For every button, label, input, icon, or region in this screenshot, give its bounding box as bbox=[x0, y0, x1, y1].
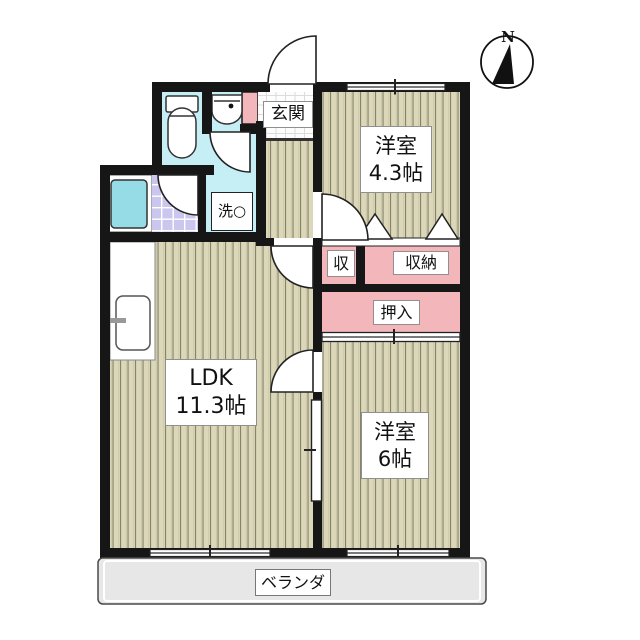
ldk-name: LDK bbox=[189, 365, 233, 393]
label-storage-small: 収 bbox=[327, 250, 355, 277]
bathtub bbox=[111, 180, 147, 228]
wall-hall-west-room bbox=[313, 82, 322, 192]
ldk-doorway-gap bbox=[272, 238, 313, 246]
wall-outer-right bbox=[460, 82, 470, 558]
wall-ldk-door-jamb bbox=[258, 238, 274, 246]
shoe-cabinet bbox=[242, 92, 258, 124]
wall-top-left bbox=[152, 82, 270, 92]
label-oshiire: 押入 bbox=[373, 300, 420, 325]
oshiire-sliding-tick bbox=[393, 329, 395, 344]
western-room-6-size: 6帖 bbox=[378, 446, 412, 472]
genkan-step-edge bbox=[258, 138, 313, 141]
label-ldk: LDK 11.3帖 bbox=[165, 359, 257, 426]
genkan-text: 玄関 bbox=[271, 104, 305, 125]
wall-bath-right bbox=[198, 172, 206, 238]
wall-partition-bottom bbox=[313, 500, 322, 548]
wall-storage-divider bbox=[356, 246, 365, 284]
washbasin-sink bbox=[212, 95, 242, 124]
label-veranda: ベランダ bbox=[255, 569, 331, 596]
western-room-4-3-name: 洋室 bbox=[375, 133, 417, 159]
label-western-room-6: 洋室 6帖 bbox=[361, 412, 429, 479]
storage-small-text: 収 bbox=[333, 254, 349, 274]
wall-toilet-left bbox=[152, 82, 162, 175]
ldk-west6-sliding-tick bbox=[304, 449, 316, 451]
laundry-text: 洗○ bbox=[218, 202, 246, 221]
oshiire-text: 押入 bbox=[380, 303, 412, 323]
label-storage: 収納 bbox=[393, 251, 449, 275]
wall-closet-left bbox=[313, 238, 322, 352]
label-genkan: 玄関 bbox=[263, 101, 313, 128]
window-top-tick bbox=[394, 79, 396, 95]
storage-text: 収納 bbox=[405, 253, 437, 273]
western-room-4-3-size: 4.3帖 bbox=[369, 160, 423, 186]
wall-washroom-bottom bbox=[100, 232, 266, 242]
washbasin-faucet-dot bbox=[229, 104, 234, 109]
label-western-room-4-3: 洋室 4.3帖 bbox=[360, 126, 432, 193]
wall-washroom-hall bbox=[256, 121, 266, 246]
wall-outer-left bbox=[100, 165, 110, 558]
compass-north-label: N bbox=[499, 28, 517, 46]
floor-plan-drawing bbox=[0, 0, 640, 640]
wall-closet-oshiire bbox=[313, 284, 460, 292]
oshiire-sliding-midline bbox=[322, 336, 460, 337]
ldk-size: 11.3帖 bbox=[176, 393, 247, 421]
floor-plan: 玄関 洋室 4.3帖 収 収納 押入 洗○ LDK 11.3帖 洋室 6帖 ベラ… bbox=[0, 0, 640, 640]
north-text: N bbox=[501, 28, 515, 47]
wall-toilet-washbasin bbox=[202, 92, 212, 134]
western-room-6-name: 洋室 bbox=[374, 419, 416, 445]
veranda-text: ベランダ bbox=[261, 573, 325, 593]
entrance-door-arc bbox=[268, 36, 316, 84]
hallway-floor bbox=[266, 141, 313, 238]
label-laundry-space: 洗○ bbox=[211, 192, 253, 231]
